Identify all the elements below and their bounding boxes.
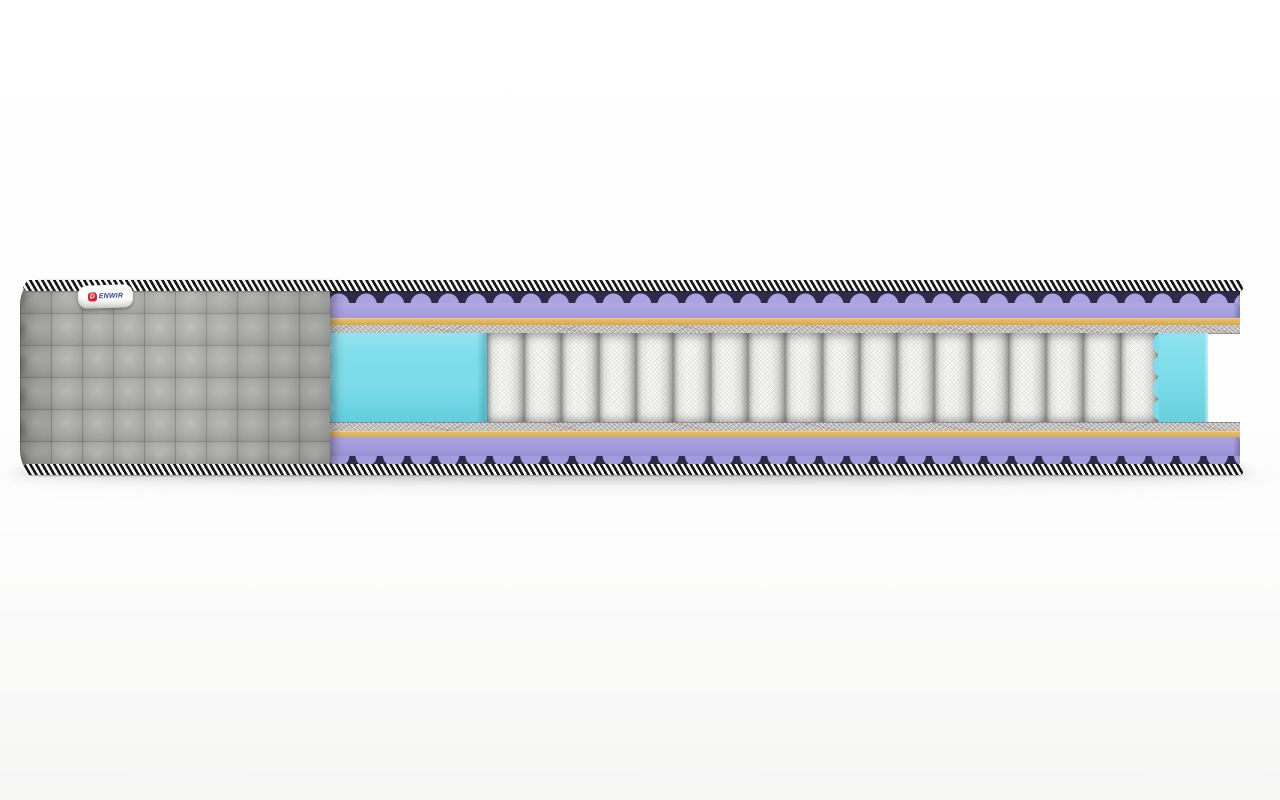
side-foam-block-right xyxy=(1158,333,1208,423)
brand-logo-icon: D xyxy=(88,292,97,301)
cutaway-layer-stack xyxy=(325,278,1242,477)
edge-tape-top xyxy=(23,280,1243,291)
side-foam-block-left xyxy=(330,333,487,423)
brand-tag-label: ENWIR xyxy=(99,292,124,301)
purple-foam-layer-top xyxy=(325,303,1240,319)
edge-tape-bottom xyxy=(23,464,1243,475)
spring-core-row xyxy=(325,333,1215,423)
product-image: D ENWIR xyxy=(0,0,1280,800)
brand-tag: D ENWIR xyxy=(78,284,134,309)
mattress-cross-section: D ENWIR xyxy=(20,278,1246,477)
quilted-fabric-cover xyxy=(20,281,330,474)
purple-foam-layer-bottom xyxy=(325,437,1240,457)
pocket-springs xyxy=(487,333,1158,423)
